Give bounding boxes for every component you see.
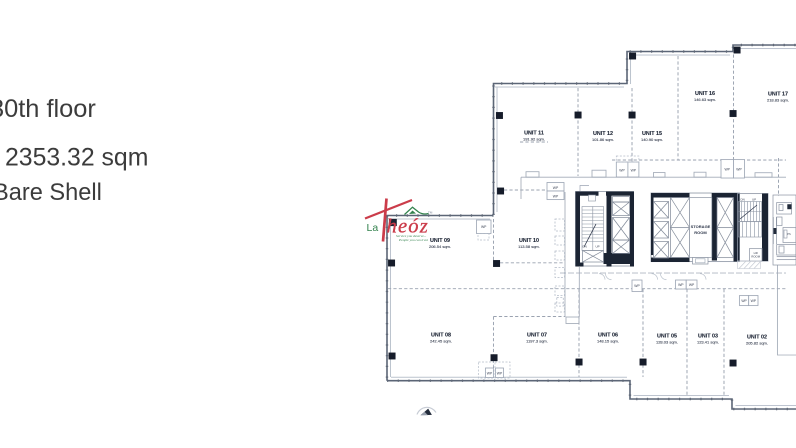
svg-text:ROOM: ROOM xyxy=(694,230,707,235)
svg-text:WP: WP xyxy=(481,225,487,229)
svg-text:UNIT 17: UNIT 17 xyxy=(768,92,788,98)
svg-text:UNIT 05: UNIT 05 xyxy=(657,334,677,340)
svg-text:30th floor: 30th floor xyxy=(0,95,96,123)
svg-text:UNIT 11: UNIT 11 xyxy=(524,131,544,137)
svg-text:205.82 sqm.: 205.82 sqm. xyxy=(746,341,768,346)
svg-text:UNIT 03: UNIT 03 xyxy=(698,334,718,340)
svg-text:WP: WP xyxy=(634,284,640,288)
svg-text:Service you deserve...: Service you deserve... xyxy=(396,234,427,238)
svg-text:UP: UP xyxy=(752,198,756,202)
svg-text:WP: WP xyxy=(487,372,493,376)
svg-text:WP: WP xyxy=(631,169,637,173)
svg-text:STORAGE: STORAGE xyxy=(691,224,711,229)
svg-text:TM: TM xyxy=(428,211,433,215)
svg-text:148.15 sqm.: 148.15 sqm. xyxy=(597,339,619,344)
svg-text:140.90 sqm.: 140.90 sqm. xyxy=(641,137,663,142)
svg-text:UNIT 16: UNIT 16 xyxy=(695,91,715,97)
svg-text:WP: WP xyxy=(741,299,747,303)
svg-text:UNIT 15: UNIT 15 xyxy=(642,131,662,137)
svg-text:WP: WP xyxy=(736,168,742,172)
svg-text:242.45 sqm.: 242.45 sqm. xyxy=(430,339,452,344)
svg-text:ROOM: ROOM xyxy=(751,255,760,259)
svg-text:PS: PS xyxy=(787,232,791,236)
svg-text:UNIT 08: UNIT 08 xyxy=(431,333,451,339)
svg-text:WP: WP xyxy=(678,283,684,287)
svg-text:Bare Shell: Bare Shell xyxy=(0,180,102,206)
svg-text:WP: WP xyxy=(619,169,625,173)
svg-text:2353.32 sqm: 2353.32 sqm xyxy=(5,144,148,171)
svg-text:People you can trust: People you can trust xyxy=(398,238,429,242)
svg-text:113.58 sqm.: 113.58 sqm. xyxy=(518,244,540,249)
svg-text:DN: DN xyxy=(582,245,586,249)
svg-text:WP: WP xyxy=(553,195,559,199)
svg-text:191.92 sqm.: 191.92 sqm. xyxy=(523,137,545,142)
svg-text:UNIT 06: UNIT 06 xyxy=(598,333,618,339)
svg-text:UP: UP xyxy=(595,245,599,249)
svg-text:206.54 sqm.: 206.54 sqm. xyxy=(429,244,451,249)
svg-text:WP: WP xyxy=(751,299,757,303)
svg-text:WP: WP xyxy=(724,168,730,172)
svg-text:WP: WP xyxy=(497,372,503,376)
svg-text:WP: WP xyxy=(553,186,559,190)
svg-text:UNIT 07: UNIT 07 xyxy=(527,333,547,339)
svg-text:UNIT 12: UNIT 12 xyxy=(593,131,613,137)
svg-text:UNIT 02: UNIT 02 xyxy=(747,335,767,341)
svg-text:128.03 sqm.: 128.03 sqm. xyxy=(656,340,678,345)
svg-text:123.41 sqm.: 123.41 sqm. xyxy=(697,340,719,345)
svg-text:WP: WP xyxy=(689,283,695,287)
svg-text:DN: DN xyxy=(741,198,745,202)
svg-text:146.63 sqm.: 146.63 sqm. xyxy=(694,97,716,102)
svg-text:1197.3 sqm.: 1197.3 sqm. xyxy=(526,339,548,344)
svg-text:218.83 sqm.: 218.83 sqm. xyxy=(767,98,789,103)
svg-text:La: La xyxy=(366,222,378,234)
svg-text:101.86 sqm.: 101.86 sqm. xyxy=(592,137,614,142)
